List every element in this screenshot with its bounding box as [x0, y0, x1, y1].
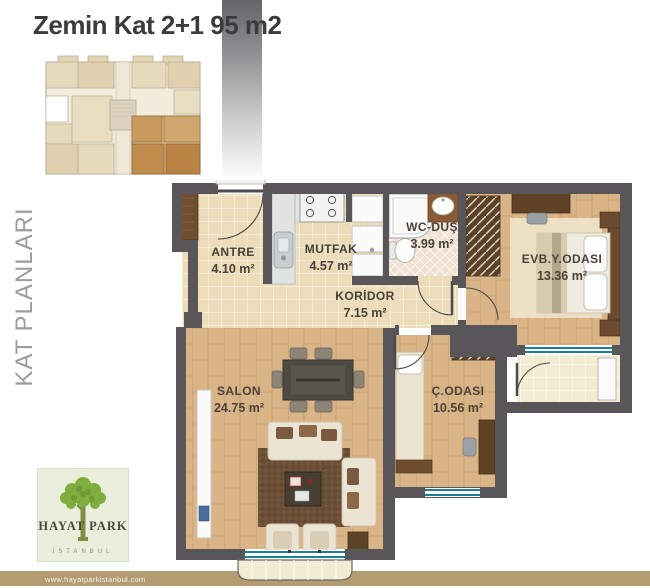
room-area: 13.36 m² [522, 270, 602, 283]
room-area: 3.99 m² [406, 238, 458, 251]
room-name: Ç.ODASI [432, 385, 485, 398]
bedroom-wardrobe [466, 196, 500, 276]
room-label-mutfak: MUTFAK 4.57 m² [305, 243, 357, 273]
room-area: 10.56 m² [432, 402, 485, 415]
room-name: ANTRE [211, 246, 254, 259]
tree-icon [38, 469, 128, 561]
entrance-threshold [216, 180, 265, 184]
sofa-right [342, 458, 376, 526]
stove [300, 192, 344, 222]
wc-sink [428, 192, 458, 222]
floor-plan-page: Zemin Kat 2+1 95 m2 KAT PLANLARI [0, 0, 650, 588]
unit-floor-plan [170, 180, 638, 582]
room-area: 24.75 m² [214, 402, 264, 415]
window-sill [238, 560, 352, 580]
logo-city: İSTANBUL [38, 549, 128, 555]
page-title: Zemin Kat 2+1 95 m2 [33, 10, 281, 41]
room-name: SALON [214, 385, 264, 398]
bedroom-desk [512, 192, 570, 213]
building-overview-plan-icon [28, 52, 218, 184]
hayat-park-logo: HAYAT PARK İSTANBUL [37, 468, 129, 562]
room-area: 4.57 m² [305, 260, 357, 273]
room-name: EVB.Y.ODASI [522, 253, 602, 266]
coffee-table [285, 472, 321, 506]
side-table [348, 532, 368, 550]
sidebar-label: KAT PLANLARI [11, 207, 39, 386]
room-name: WC-DUŞ [406, 221, 458, 234]
logo-name: HAYAT PARK [38, 519, 128, 534]
room-label-evby-odasi: EVB.Y.ODASI 13.36 m² [522, 253, 602, 283]
balcony-bench [598, 358, 616, 400]
room-label-wc-dus: WC-DUŞ 3.99 m² [406, 221, 458, 251]
room-label-koridor: KORİDOR 7.15 m² [335, 290, 394, 320]
room-area: 7.15 m² [335, 307, 394, 320]
footer-url: www.hayatparkistanbul.com [45, 575, 145, 584]
room-area: 4.10 m² [211, 263, 254, 276]
room-name: KORİDOR [335, 290, 394, 303]
room-label-antre: ANTRE 4.10 m² [211, 246, 254, 276]
child-desk [479, 420, 495, 474]
child-desk-chair [463, 438, 476, 456]
room-label-c-odasi: Ç.ODASI 10.56 m² [432, 385, 485, 415]
room-name: MUTFAK [305, 243, 357, 256]
desk-chair [527, 213, 547, 224]
room-label-salon: SALON 24.75 m² [214, 385, 264, 415]
sofa-top [268, 422, 342, 460]
console-book [199, 506, 209, 521]
